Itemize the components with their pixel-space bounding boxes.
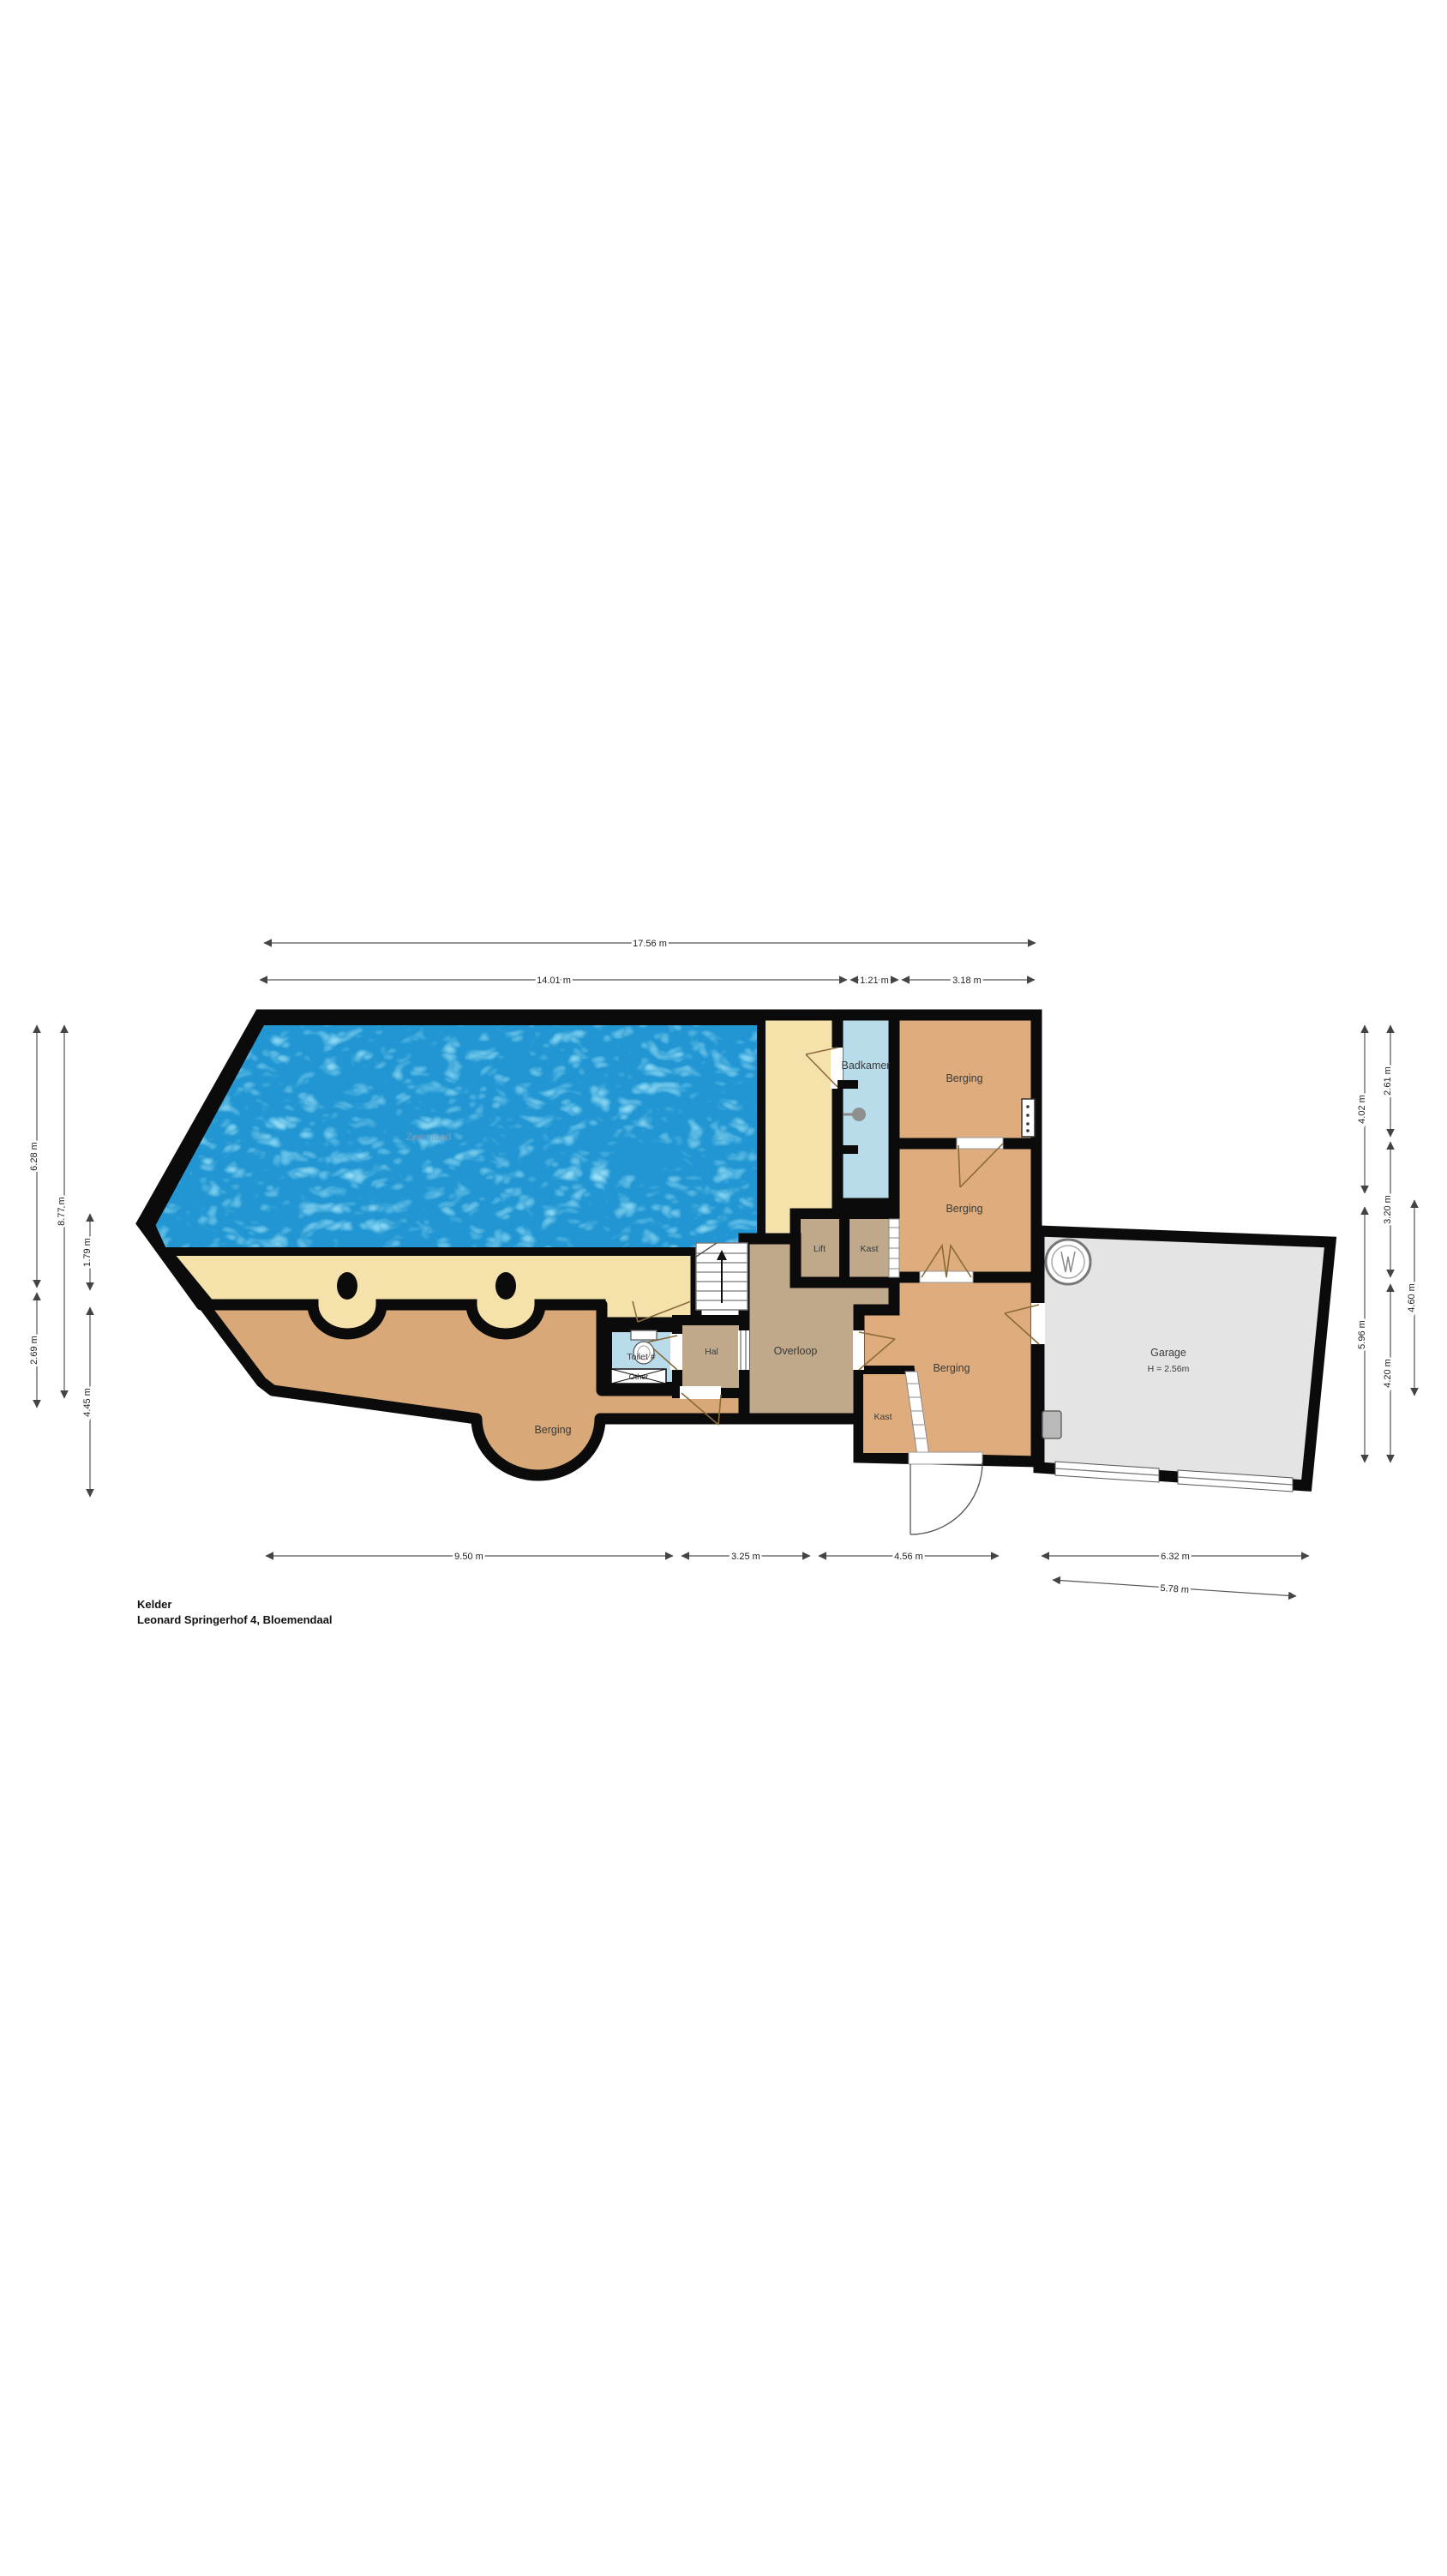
dim-right-mid-1: 2.61 m: [1383, 1025, 1393, 1137]
svg-text:6.28 m: 6.28 m: [29, 1142, 39, 1171]
label-berging-mid: Berging: [946, 1203, 982, 1215]
label-toilet: Toilet #: [627, 1352, 655, 1362]
shower-head-icon: [852, 1108, 866, 1121]
pillar-left: [337, 1272, 357, 1300]
dim-top-2: 1.21 m: [850, 976, 898, 986]
svg-text:5.96 m: 5.96 m: [1357, 1320, 1367, 1349]
svg-text:2.61 m: 2.61 m: [1383, 1066, 1393, 1096]
plan-subtitle: Leonard Springerhof 4, Bloemendaal: [137, 1613, 333, 1626]
boiler-icon: [1046, 1240, 1090, 1284]
plan-title-block: Kelder Leonard Springerhof 4, Bloemendaa…: [137, 1598, 333, 1626]
dim-bottom-4: 6.32 m: [1042, 1552, 1309, 1562]
dim-right-mid-2: 3.20 m: [1383, 1142, 1393, 1277]
dim-left-inner-2: 4.45 m: [82, 1307, 93, 1497]
svg-text:8.77 m: 8.77 m: [57, 1197, 67, 1226]
dim-left-inner-1: 1.79 m: [82, 1214, 93, 1290]
svg-text:6.32 m: 6.32 m: [1161, 1552, 1190, 1562]
svg-text:1.79 m: 1.79 m: [82, 1238, 93, 1267]
crossed-fixture-box: Other: [611, 1369, 666, 1384]
svg-text:4.45 m: 4.45 m: [82, 1388, 93, 1417]
svg-text:3.20 m: 3.20 m: [1383, 1195, 1393, 1224]
label-hal: Hal: [705, 1347, 718, 1357]
dim-right-inner-2: 5.96 m: [1357, 1207, 1367, 1462]
label-badkamer: Badkamer: [842, 1060, 891, 1072]
svg-text:14.01 m: 14.01 m: [537, 976, 571, 986]
wall-unit-icon: [1042, 1411, 1061, 1438]
svg-text:4.60 m: 4.60 m: [1407, 1283, 1417, 1312]
dim-top-1: 14.01 m: [260, 976, 847, 986]
svg-text:4.02 m: 4.02 m: [1357, 1095, 1367, 1124]
dim-left-outer-1: 6.28 m: [29, 1025, 39, 1288]
dim-bottom-3: 4.56 m: [819, 1552, 999, 1562]
label-berging-left: Berging: [534, 1424, 571, 1436]
svg-text:17.56 m: 17.56 m: [633, 939, 667, 949]
dim-right-inner-1: 4.02 m: [1357, 1025, 1367, 1193]
dim-bottom-slanted: 5.78 m: [1053, 1580, 1296, 1596]
svg-text:2.69 m: 2.69 m: [29, 1336, 39, 1365]
label-berging-bottom: Berging: [933, 1362, 970, 1374]
label-kast-top: Kast: [860, 1244, 878, 1254]
label-lift: Lift: [814, 1244, 826, 1254]
dim-left-outer-2: 2.69 m: [29, 1293, 39, 1408]
staircase: [696, 1243, 748, 1310]
svg-text:3.25 m: 3.25 m: [731, 1552, 760, 1562]
svg-text:9.50 m: 9.50 m: [454, 1552, 483, 1562]
svg-text:4.56 m: 4.56 m: [894, 1552, 923, 1562]
svg-text:1.21 m: 1.21 m: [860, 976, 889, 986]
fixture-box-label: Other: [629, 1372, 649, 1381]
pool-water: [137, 1012, 772, 1260]
label-garage: Garage: [1150, 1347, 1186, 1359]
dim-bottom-2: 3.25 m: [681, 1552, 810, 1562]
room-badkamer: [838, 1015, 894, 1204]
dim-left-mid: 8.77 m: [57, 1025, 67, 1398]
floorplan-canvas: Other Zwembad Badkamer Berging Berging B…: [0, 0, 1447, 2572]
pillar-right: [495, 1272, 516, 1300]
dim-bottom-1: 9.50 m: [266, 1552, 673, 1562]
label-berging-top: Berging: [946, 1072, 982, 1084]
svg-text:3.18 m: 3.18 m: [952, 976, 982, 986]
radiator-icon: [1022, 1099, 1035, 1137]
label-garage-height: H = 2.56m: [1148, 1364, 1190, 1374]
label-overloop: Overloop: [774, 1345, 818, 1357]
plan-title: Kelder: [137, 1598, 171, 1611]
svg-text:4.20 m: 4.20 m: [1383, 1359, 1393, 1388]
dim-top-3: 3.18 m: [902, 976, 1035, 986]
dim-right-outer: 4.60 m: [1407, 1200, 1417, 1396]
dim-top-total: 17.56 m: [264, 939, 1036, 949]
svg-text:5.78 m: 5.78 m: [1160, 1583, 1189, 1595]
label-zwembad: Zwembad: [406, 1131, 452, 1143]
floorplan-page: Other Zwembad Badkamer Berging Berging B…: [0, 0, 1447, 2572]
label-kast-bottom: Kast: [874, 1412, 892, 1422]
dim-right-mid-3: 4.20 m: [1383, 1284, 1393, 1462]
